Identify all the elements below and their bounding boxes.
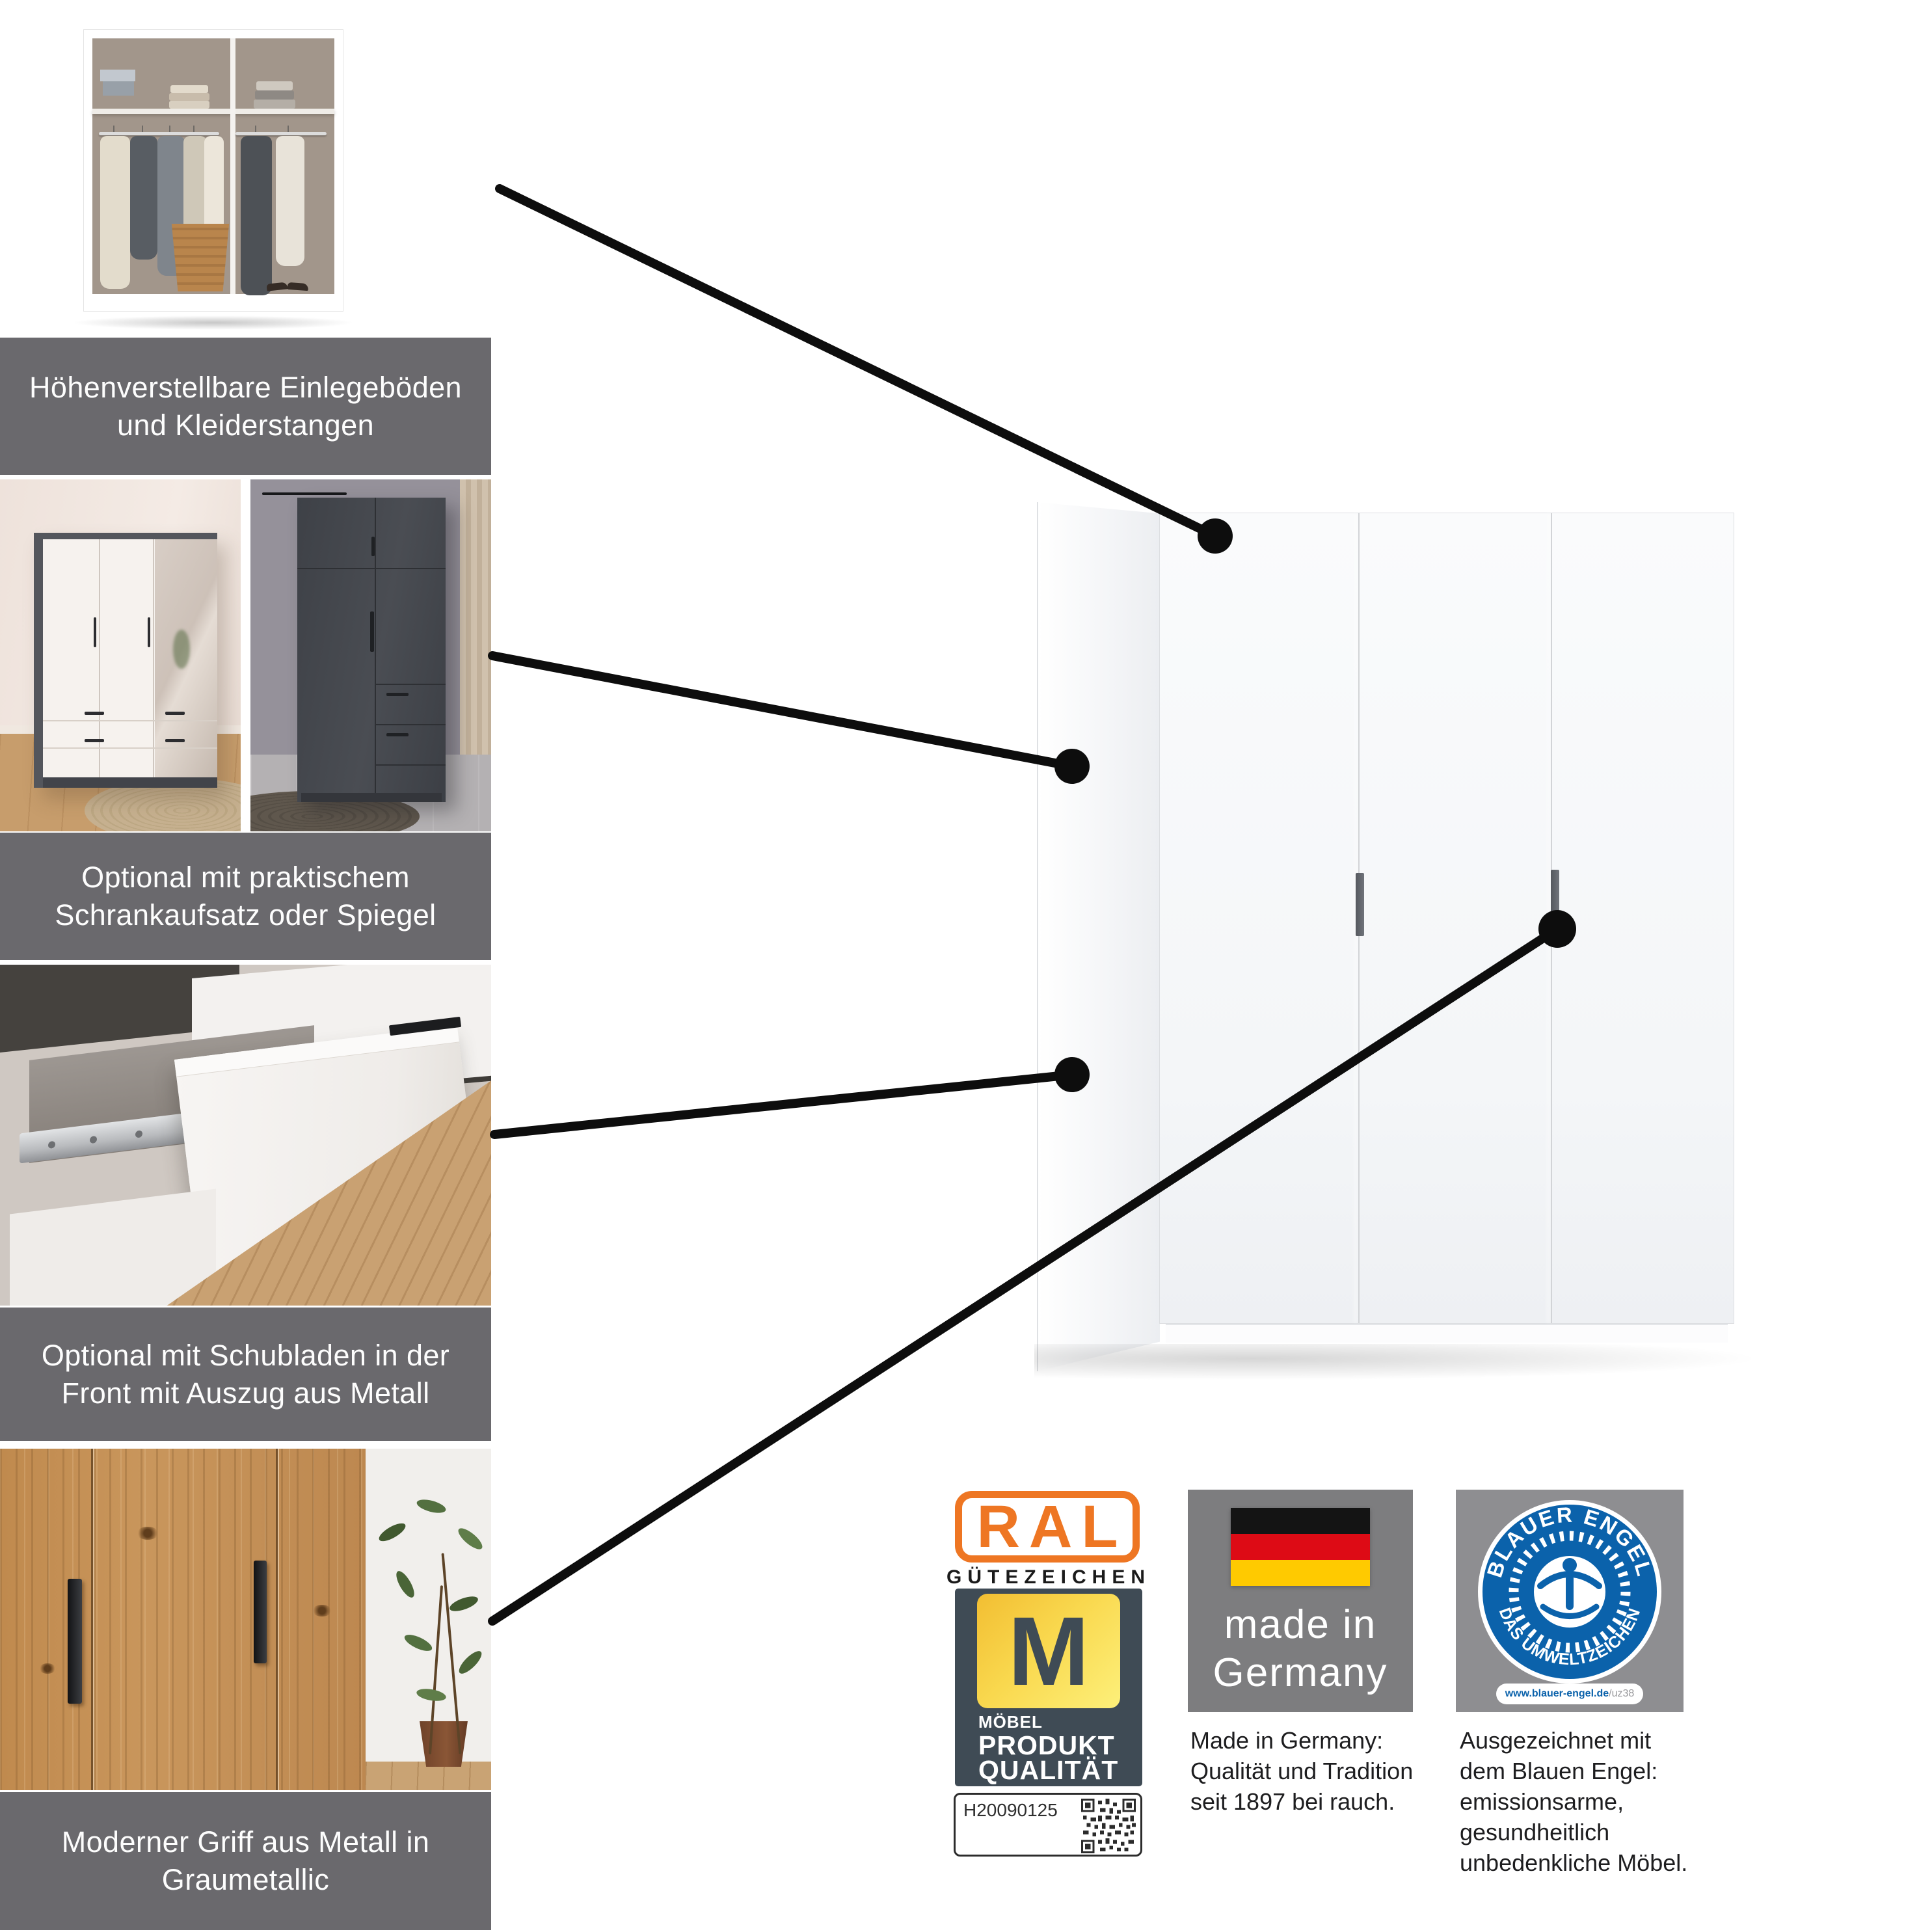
caption-1-line-1: Höhenverstellbare Einlegeböden [29,369,462,407]
callout-line-2 [492,656,1072,766]
made-in-description: Made in Germany: Qualität und Tradition … [1190,1725,1413,1817]
drawer-handle-icon [85,739,104,742]
door-handle-icon [148,617,150,647]
wood-doors [0,1449,366,1790]
feature-image-drawer [0,965,491,1306]
made-in-germany-badge: made in Germany [1188,1490,1413,1712]
drawer-handle-icon [85,712,104,715]
caption-1-line-2: und Kleiderstangen [117,407,374,444]
blauer-engel-badge: BLAUER ENGEL DAS UMWELTZEICHEN www.blaue… [1456,1490,1684,1712]
ral-guetezeichen-label: GÜTEZEICHEN [946,1566,1148,1589]
wardrobe-plinth [1166,1324,1728,1343]
basket [169,224,232,291]
made-in-label: made in [1188,1602,1413,1648]
door-handle-icon [370,611,374,652]
feature-image-handles [0,1449,491,1790]
feature-image-mirror-wardrobe [0,479,241,831]
qualitaet-label: QUALITÄT [978,1755,1118,1786]
caption-2-line-2: Schrankaufsatz oder Spiegel [55,896,436,934]
feature-image-interior [72,21,355,332]
german-flag-icon [1231,1508,1370,1586]
metal-handle-icon [68,1579,82,1704]
hanging-garment [100,136,130,289]
storage-box [100,70,135,81]
certificate-number: H20090125 [963,1800,1058,1821]
wardrobe-handle-icon [1356,873,1364,936]
caption-2-line-1: Optional mit praktischem [81,859,410,896]
callout-line-1 [500,189,1215,536]
wardrobe-front [1159,513,1734,1324]
door-handle-icon [94,617,96,647]
caption-4-line-1: Moderner Griff aus Metall in [62,1823,430,1861]
caption-3-line-1: Optional mit Schubladen in der [42,1337,449,1375]
caption-band-4: Moderner Griff aus Metall in Graumetalli… [0,1792,491,1930]
drawer-handle-icon [165,739,185,742]
drawer-handle-icon [386,693,409,696]
clothes-rail [235,132,327,135]
wardrobe-handle-icon [1551,870,1559,922]
m-icon: M [977,1594,1120,1708]
germany-label: Germany [1188,1650,1413,1696]
drawer-handle-icon [386,733,409,736]
feature-image-top-unit-wardrobe [250,479,491,831]
hanging-garment [276,136,304,266]
qr-code-icon [1081,1799,1136,1853]
hanging-garment [130,136,157,260]
blauer-engel-url: www.blauer-engel.de/uz38 [1496,1684,1643,1704]
door-handle-icon [371,537,375,556]
interior-wardrobe-inside [92,38,334,294]
ral-logo: RAL [955,1491,1140,1563]
caption-band-3: Optional mit Schubladen in der Front mit… [0,1308,491,1441]
metal-handle-icon [254,1561,267,1663]
product-infographic: Höhenverstellbare Einlegeböden und Kleid… [0,0,1932,1932]
clothes-rail [99,132,219,135]
caption-4-line-2: Graumetallic [162,1861,329,1899]
caption-band-2: Optional mit praktischem Schrankaufsatz … [0,833,491,960]
mirror-door [155,539,217,777]
moebel-label: MÖBEL [978,1712,1043,1732]
plant-pot [416,1721,471,1767]
drawer-handle-icon [165,712,185,715]
storage-box [103,81,134,96]
white-wardrobe [34,533,217,788]
curtain [460,479,491,773]
callout-line-3 [494,1075,1072,1134]
shoe [288,282,309,291]
caption-3-line-2: Front mit Auszug aus Metall [61,1375,429,1412]
moebel-produkt-qualitaet-badge: M MÖBEL PRODUKT QUALITÄT [955,1589,1142,1786]
blauer-engel-logo: BLAUER ENGEL DAS UMWELTZEICHEN [1475,1497,1664,1686]
wardrobe-side-panel [1037,502,1160,1371]
caption-band-1: Höhenverstellbare Einlegeböden und Kleid… [0,338,491,475]
shoe [267,282,288,291]
interior-wardrobe-frame [83,29,343,312]
ral-text: RAL [976,1493,1127,1561]
hanging-garment [241,136,272,295]
grey-wardrobe [297,498,446,802]
certificate-code-box: H20090125 [954,1793,1142,1857]
blauer-engel-description: Ausgezeichnet mit dem Blauen Engel: emis… [1460,1725,1687,1878]
